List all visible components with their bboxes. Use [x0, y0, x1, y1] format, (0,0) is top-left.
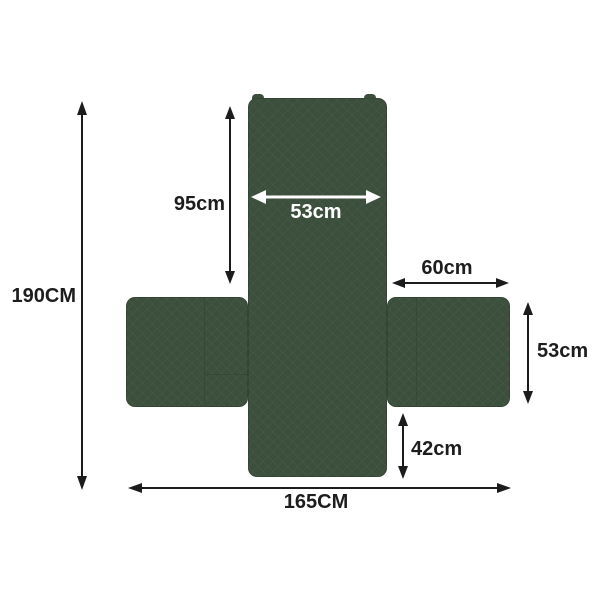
back-height-arrow [225, 106, 235, 284]
dim-label-front-drop: 42cm [411, 439, 462, 459]
dim-label-total-width: 165CM [266, 492, 366, 512]
dim-label-total-height: 190CM [0, 286, 76, 306]
dim-label-back-height: 95cm [150, 194, 225, 214]
front-drop-arrow [398, 413, 408, 479]
right-arm-height-arrow [523, 302, 533, 404]
sofa-cover-dimension-diagram: 190CM 95cm 53cm 60cm 53cm 42cm 165CM [0, 0, 600, 600]
right-arm-length-arrow [392, 278, 509, 288]
dim-label-right-arm-height: 53cm [537, 341, 588, 361]
dim-label-back-width: 53cm [266, 202, 366, 222]
total-height-arrow [77, 101, 87, 490]
dim-label-right-arm-length: 60cm [397, 258, 497, 278]
